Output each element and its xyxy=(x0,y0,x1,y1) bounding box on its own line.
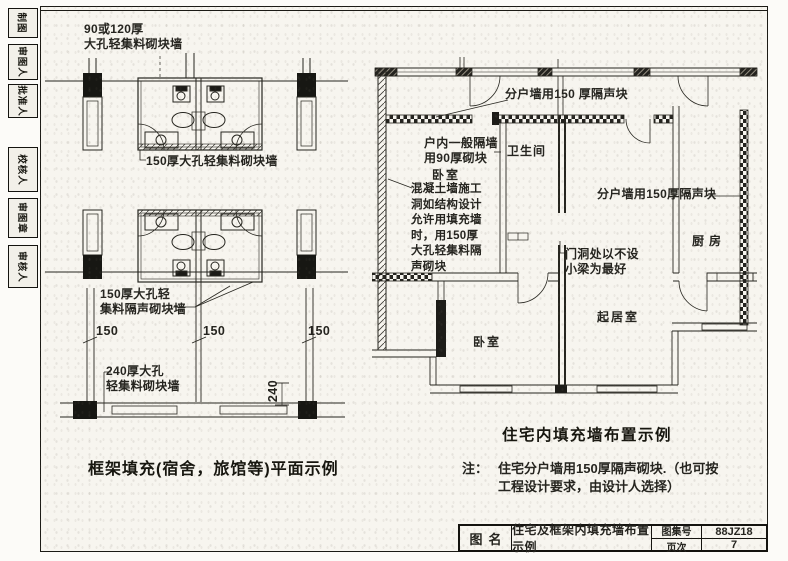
title-block-meta-labels: 图集号 页次 xyxy=(652,526,702,550)
left-plan-caption: 框架填充(宿舍，旅馆等)平面示例 xyxy=(88,455,339,479)
room-label-bathroom: 卫生间 xyxy=(507,142,546,159)
annotation-party-wall-right: 分户墙用150厚隔声块 xyxy=(597,187,716,202)
room-label-bedroom1: 卧室 xyxy=(432,166,460,183)
interior-wall-b xyxy=(372,273,558,357)
side-stamp-5: 审图章 xyxy=(8,198,38,238)
plan-note: 注： 住宅分户墙用150厚隔声砌块.（也可按 工程设计要求，由设计人选择） xyxy=(462,460,742,496)
side-stamp-6: 审核人 xyxy=(8,245,38,288)
dimension-150-1: 150 xyxy=(96,324,118,338)
right-plan-caption: 住宅内填充墙布置示例 xyxy=(502,423,672,445)
annotation-wall-150: 150厚大孔轻集料砌块墙 xyxy=(146,154,278,169)
annotation-door-opening: 门洞处以不设 小梁为最好 xyxy=(565,247,639,277)
leader-wall-90-120 xyxy=(160,53,194,78)
title-block: 图名 住宅及框架内填充墙布置示例 图集号 页次 88JZ18 7 xyxy=(458,524,768,552)
side-stamp-5-label: 审图章 xyxy=(16,202,30,234)
side-stamp-2: 审图人 xyxy=(8,44,38,80)
room-label-bedroom2: 卧室 xyxy=(473,333,501,350)
dimension-150-3: 150 xyxy=(308,324,330,338)
annotation-concrete-hole: 混凝土墙施工 洞如结构设计 允许用填充墙 时，用150厚 大孔轻集料隔 声砌块 xyxy=(411,182,482,275)
side-stamp-4-label: 校核人 xyxy=(16,154,30,186)
annotation-wall-150-sound: 150厚大孔轻 集料隔声砌块墙 xyxy=(100,287,186,317)
side-stamp-6-label: 审核人 xyxy=(16,251,30,283)
note-body: 住宅分户墙用150厚隔声砌块.（也可按 工程设计要求，由设计人选择） xyxy=(498,460,718,496)
columns-row-2 xyxy=(83,210,316,279)
annotation-wall-240: 240厚大孔 轻集料砌块墙 xyxy=(106,364,180,394)
page-number-value: 7 xyxy=(702,538,766,551)
atlas-page: 制图 审图人 批准人 校核人 审图章 审核人 xyxy=(0,0,788,561)
room-label-kitchen: 厨房 xyxy=(692,232,726,249)
side-stamp-1: 制图 xyxy=(8,8,38,38)
annotation-partition-90: 户内一般隔墙 用90厚砌块 xyxy=(424,136,498,166)
entry-recess xyxy=(372,350,436,385)
left-exterior-wall xyxy=(378,68,386,350)
annotation-party-wall-top: 分户墙用150 厚隔声块 xyxy=(505,87,628,102)
unit-2 xyxy=(138,210,262,282)
dimension-240: 240 xyxy=(266,380,280,402)
side-stamp-4: 校核人 xyxy=(8,147,38,192)
annotation-wall-90-120: 90或120厚 大孔轻集料砌块墙 xyxy=(84,22,182,52)
note-line-2: 工程设计要求，由设计人选择） xyxy=(498,478,718,496)
title-block-name-label: 图名 xyxy=(460,526,512,550)
note-prefix: 注： xyxy=(462,460,488,496)
dimension-150-2: 150 xyxy=(203,324,225,338)
left-plan-drawing xyxy=(45,20,350,460)
side-stamp-2-label: 审图人 xyxy=(16,46,30,78)
title-block-meta-values: 88JZ18 7 xyxy=(702,526,766,550)
atlas-number-label: 图集号 xyxy=(652,523,701,538)
note-line-1: 住宅分户墙用150厚隔声砌块.（也可按 xyxy=(498,460,718,478)
page-number-label: 页次 xyxy=(652,538,701,554)
side-stamp-3: 批准人 xyxy=(8,84,38,118)
bottom-wall xyxy=(60,401,345,419)
atlas-number-value: 88JZ18 xyxy=(702,526,766,538)
room-label-living: 起居室 xyxy=(597,308,639,325)
unit-1 xyxy=(138,78,262,150)
side-stamp-1-label: 制图 xyxy=(16,12,30,33)
top-exterior-wall xyxy=(375,57,757,76)
columns-row-1 xyxy=(83,58,316,150)
frame-top-double-line xyxy=(40,10,768,11)
side-stamp-3-label: 批准人 xyxy=(16,85,30,117)
title-block-name-value: 住宅及框架内填充墙布置示例 xyxy=(512,526,652,550)
party-wall-vertical-checkered xyxy=(740,110,748,325)
